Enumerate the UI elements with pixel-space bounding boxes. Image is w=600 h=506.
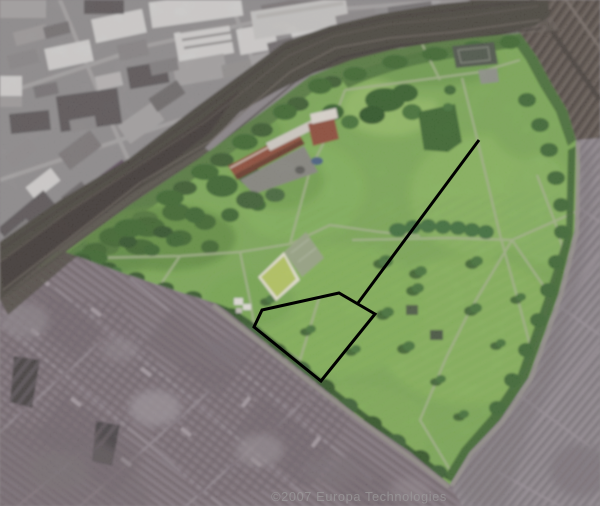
svg-text:©2007 Europa Technologies: ©2007 Europa Technologies <box>271 489 447 504</box>
